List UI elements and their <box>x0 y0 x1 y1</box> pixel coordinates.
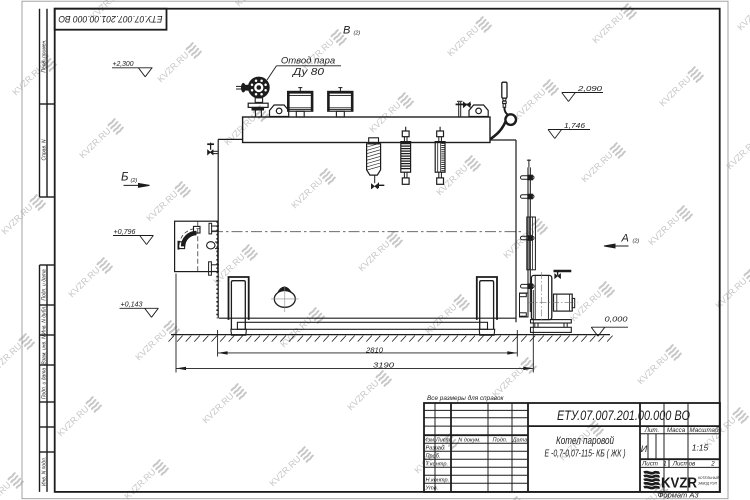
svg-text:+0,796: +0,796 <box>114 227 137 236</box>
svg-text:Лист: Лист <box>435 437 451 443</box>
svg-text:Инв. N подл.: Инв. N подл. <box>41 457 47 486</box>
svg-text:0,000: 0,000 <box>605 315 629 324</box>
svg-text:N докум.: N докум. <box>458 437 481 443</box>
svg-text:ЕТУ.07.007.201.00.000 ВО: ЕТУ.07.007.201.00.000 ВО <box>59 14 163 24</box>
svg-text:Ду 80: Ду 80 <box>292 67 325 78</box>
svg-text:Лит.: Лит. <box>644 427 660 434</box>
svg-text:Проб.: Проб. <box>426 453 441 459</box>
svg-text:Дата: Дата <box>512 437 528 443</box>
svg-text:ЗАВОД РЭП: ЗАВОД РЭП <box>698 481 717 486</box>
svg-text:+0,143: +0,143 <box>121 300 144 309</box>
svg-text:Перв. примен.: Перв. примен. <box>41 39 47 72</box>
svg-text:Масса: Масса <box>667 427 686 434</box>
svg-text:В: В <box>343 25 350 37</box>
svg-text:2,090: 2,090 <box>577 84 603 93</box>
svg-text:Все размеры для справок: Все размеры для справок <box>427 394 505 402</box>
svg-text:Т.контр.: Т.контр. <box>426 461 449 467</box>
svg-text:(2): (2) <box>354 31 361 37</box>
svg-text:Отвод пара: Отвод пара <box>281 56 335 67</box>
svg-text:Справ. N: Справ. N <box>41 139 47 160</box>
svg-text:Утв.: Утв. <box>425 485 439 491</box>
svg-text:Изм.: Изм. <box>424 437 436 443</box>
svg-text:2810: 2810 <box>365 347 383 354</box>
svg-text:Е -0,7-0,07-115- КБ ( ЖК ): Е -0,7-0,07-115- КБ ( ЖК ) <box>545 448 626 460</box>
svg-text:1,746: 1,746 <box>564 121 586 130</box>
svg-text:1: 1 <box>663 461 666 468</box>
svg-text:3190: 3190 <box>373 363 394 370</box>
svg-text:2: 2 <box>710 461 715 468</box>
svg-text:KVZR: KVZR <box>661 474 697 491</box>
svg-text:Подп. и дата: Подп. и дата <box>41 368 47 400</box>
svg-text:(2): (2) <box>633 239 640 245</box>
svg-text:Лист: Лист <box>641 461 658 468</box>
svg-text:Подп.: Подп. <box>493 437 508 443</box>
svg-text:Подп. и дата: Подп. и дата <box>41 269 47 301</box>
svg-text:+2,300: +2,300 <box>113 59 135 68</box>
svg-text:Н.контр.: Н.контр. <box>426 477 450 483</box>
svg-text:Масштаб: Масштаб <box>690 427 719 434</box>
svg-text:Взам. инв. N: Взам. инв. N <box>41 335 47 365</box>
svg-text:1:15: 1:15 <box>692 443 709 453</box>
svg-text:Б: Б <box>121 172 129 184</box>
svg-text:ЕТУ.07.007.201.00.000 ВО: ЕТУ.07.007.201.00.000 ВО <box>557 407 690 423</box>
svg-text:КОТЕЛЬНЫЙ: КОТЕЛЬНЫЙ <box>698 475 719 480</box>
svg-text:Формат А3: Формат А3 <box>657 491 699 500</box>
svg-text:И: И <box>641 444 648 454</box>
svg-text:Листов: Листов <box>672 461 696 468</box>
svg-text:(2): (2) <box>131 178 138 184</box>
svg-text:Котел паровой: Котел паровой <box>556 435 614 447</box>
svg-text:Инв. N дубл.: Инв. N дубл. <box>41 306 47 335</box>
svg-text:А: А <box>621 233 629 245</box>
svg-text:Разраб.: Разраб. <box>426 445 446 451</box>
